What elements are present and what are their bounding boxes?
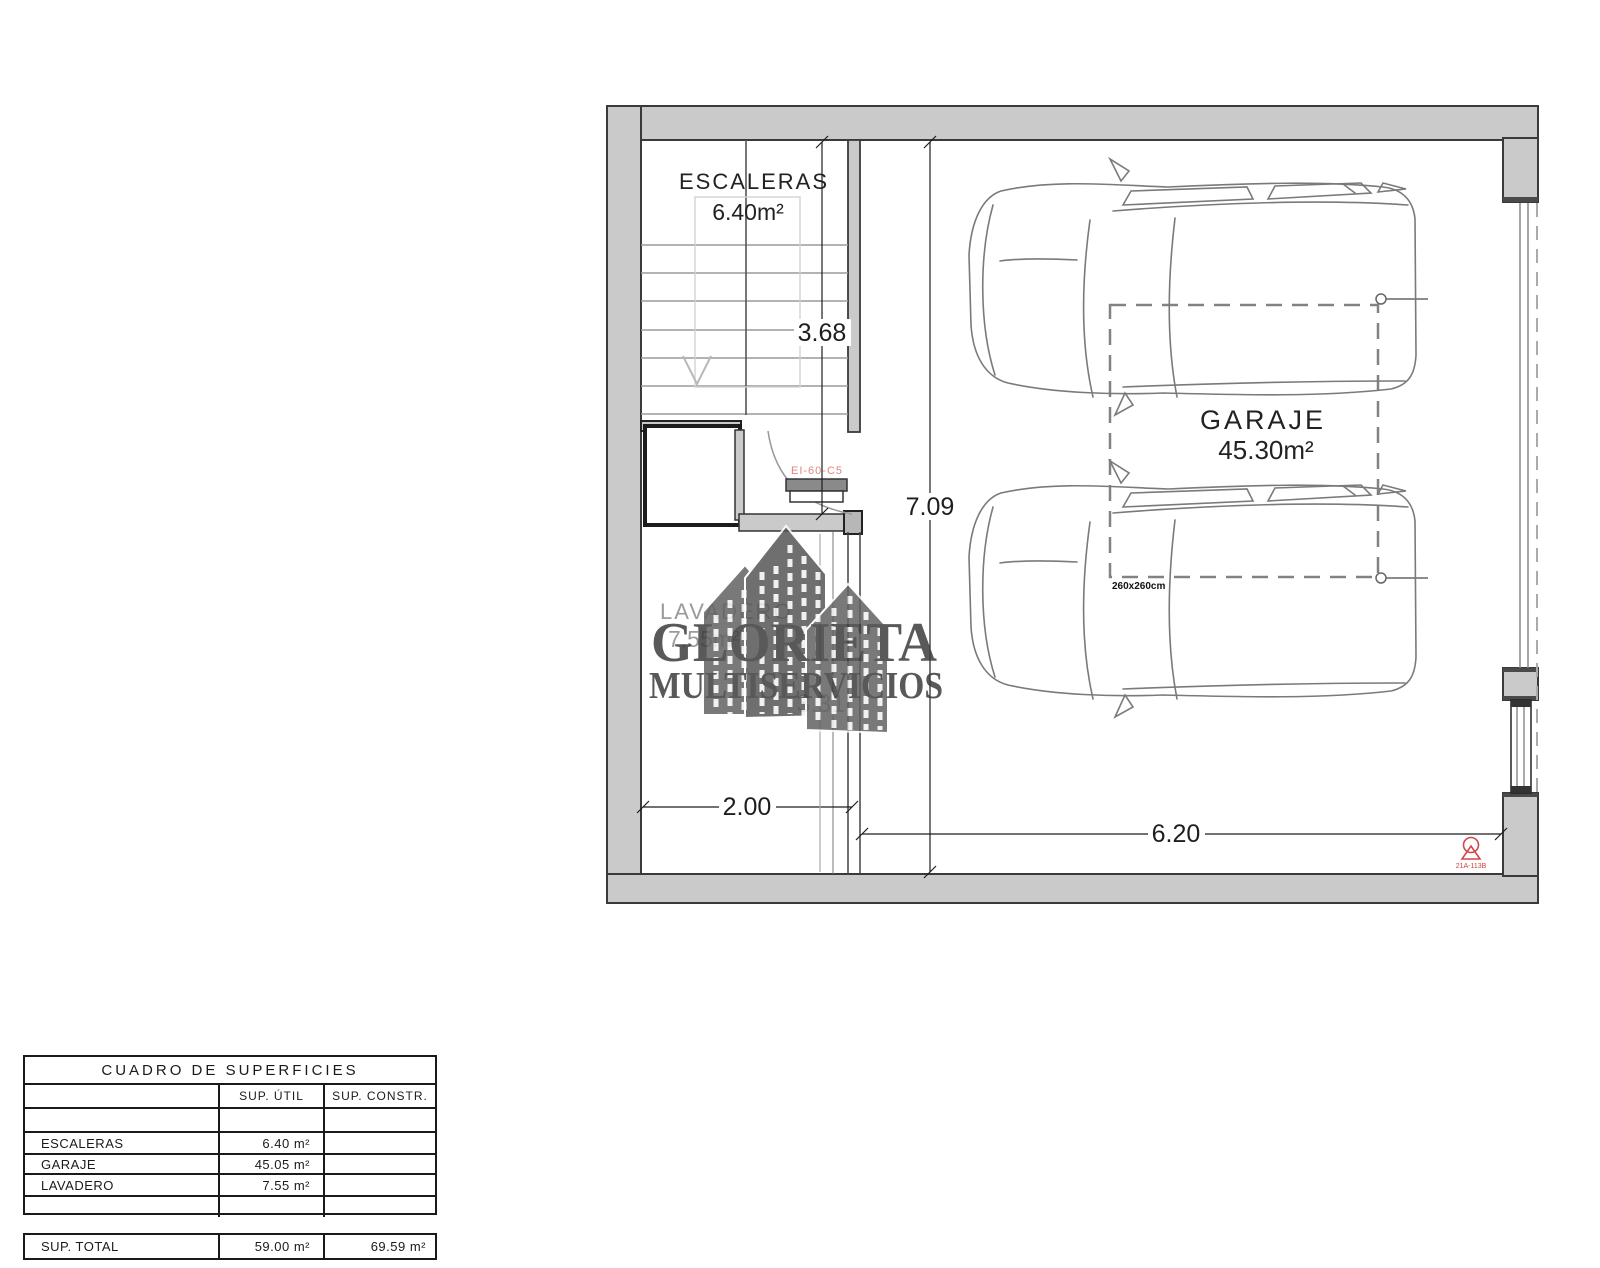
watermark: GLORIETA MULTISERVICIOS xyxy=(649,526,943,733)
table-row: LAVADERO 7.55 m² xyxy=(25,1173,435,1195)
door-leaf-bottom xyxy=(790,491,843,502)
dim-laundry-width: 2.00 xyxy=(723,793,772,821)
understair-closet xyxy=(645,426,740,525)
door-leaf-top xyxy=(786,479,847,491)
total-constr: 69.59 m² xyxy=(323,1235,435,1258)
interior-walls xyxy=(641,140,862,874)
wall-pier-top-right xyxy=(1503,138,1538,202)
parking-space-size-label: 260x260cm xyxy=(1112,581,1165,592)
wall-pier-bottom-right xyxy=(1503,793,1538,876)
surface-table-total: SUP. TOTAL 59.00 m² 69.59 m² xyxy=(23,1233,437,1260)
wall-left xyxy=(607,106,641,903)
car-bottom xyxy=(969,461,1416,717)
wall-stairs-garage xyxy=(848,140,860,432)
table-row-empty xyxy=(25,1109,435,1131)
watermark-subtitle: MULTISERVICIOS xyxy=(649,665,943,707)
header-sup-util: SUP. ÚTIL xyxy=(218,1085,323,1107)
stairs-direction-arrow-icon xyxy=(683,356,711,384)
door-fire-rating-label: EI-60-C5 xyxy=(791,465,843,477)
door: EI-60-C5 xyxy=(768,431,852,514)
dim-stairs-depth: 3.68 xyxy=(798,319,847,347)
header-blank xyxy=(25,1085,218,1107)
surface-table-header: SUP. ÚTIL SUP. CONSTR. xyxy=(25,1085,435,1109)
garage-room-label: GARAJE xyxy=(1200,405,1326,435)
garage-room-area: 45.30m² xyxy=(1218,435,1314,465)
stairs-room-label: ESCALERAS xyxy=(679,169,829,194)
wall-step-vertical xyxy=(735,430,744,520)
surface-table-title: CUADRO DE SUPERFICIES xyxy=(25,1057,435,1085)
wall-top xyxy=(607,106,1538,140)
table-row: GARAJE 45.05 m² xyxy=(25,1153,435,1173)
table-row-empty xyxy=(25,1195,435,1217)
floor-plan-page: EI-60-C5 260x260cm xyxy=(0,0,1600,1268)
fire-extinguisher-label: 21A-113B xyxy=(1456,863,1487,870)
wall-bottom xyxy=(607,874,1538,903)
dim-garage-depth: 7.09 xyxy=(906,493,955,521)
parking-marker-bottom-icon xyxy=(1376,573,1386,583)
wall-pier-mid-right xyxy=(1503,668,1538,700)
header-sup-constr: SUP. CONSTR. xyxy=(323,1085,435,1107)
car-top xyxy=(969,159,1416,415)
wall-step-horizontal xyxy=(739,514,846,531)
dim-garage-width: 6.20 xyxy=(1152,820,1201,848)
surface-table: CUADRO DE SUPERFICIES SUP. ÚTIL SUP. CON… xyxy=(23,1055,437,1215)
parking-marker-top-icon xyxy=(1376,294,1386,304)
table-row: ESCALERAS 6.40 m² xyxy=(25,1131,435,1153)
stairs-room-area: 6.40m² xyxy=(712,199,784,225)
window-right xyxy=(1511,700,1531,793)
fire-extinguisher-icon xyxy=(1462,838,1480,860)
total-util: 59.00 m² xyxy=(218,1235,323,1258)
door-jamb-cap xyxy=(844,511,862,534)
dimensions xyxy=(637,136,1507,878)
total-label: SUP. TOTAL xyxy=(25,1235,218,1258)
